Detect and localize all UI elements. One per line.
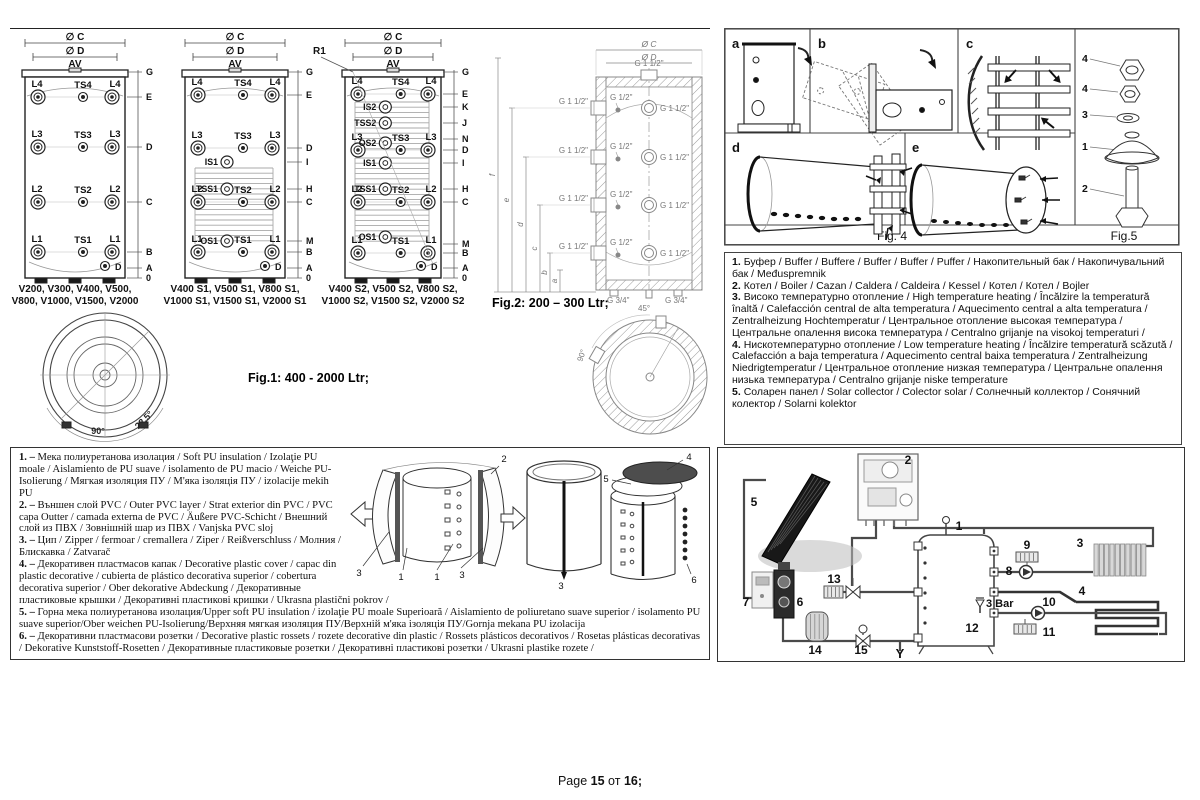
svg-text:4: 4 (1082, 53, 1088, 65)
svg-text:B: B (462, 248, 469, 258)
svg-text:c: c (530, 247, 539, 251)
svg-text:13: 13 (827, 572, 841, 586)
svg-text:V800, V1000, V1500, V2000: V800, V1000, V1500, V2000 (12, 296, 139, 307)
svg-text:A: A (306, 263, 313, 273)
svg-text:3: 3 (459, 570, 464, 581)
svg-text:C: C (462, 197, 469, 207)
svg-text:7: 7 (743, 595, 750, 609)
svg-text:E: E (462, 89, 468, 99)
svg-text:L1: L1 (269, 234, 281, 245)
svg-text:R1: R1 (313, 46, 326, 57)
svg-text:L2: L2 (269, 184, 280, 195)
legend-right-list: 1. Буфер / Buffer / Buffere / Buffer / B… (732, 257, 1174, 410)
manual-page: ∅ C∅ DAVGEDCBA0L4TS4L4L3TS3L3L2TS2L2L1TS… (0, 0, 1200, 800)
svg-text:OS1: OS1 (359, 232, 377, 242)
svg-text:∅ C: ∅ C (226, 32, 245, 43)
svg-text:N: N (462, 134, 469, 144)
svg-text:D: D (431, 262, 438, 272)
svg-text:9: 9 (1024, 538, 1031, 552)
svg-text:∅ D: ∅ D (384, 46, 403, 57)
svg-text:TSS1: TSS1 (354, 184, 376, 194)
svg-text:OS2: OS2 (359, 138, 377, 148)
svg-text:G 1 1/2": G 1 1/2" (660, 153, 689, 162)
svg-text:5: 5 (603, 474, 608, 485)
svg-text:G 1/2": G 1/2" (610, 190, 633, 199)
svg-text:5: 5 (751, 495, 758, 509)
svg-text:G 1 1/2": G 1 1/2" (559, 194, 588, 203)
svg-text:3: 3 (356, 568, 361, 579)
svg-text:L4: L4 (351, 76, 363, 87)
svg-text:0: 0 (306, 273, 311, 283)
svg-text:L3: L3 (269, 130, 280, 141)
svg-text:D: D (275, 262, 282, 272)
svg-text:∅ D: ∅ D (66, 46, 85, 57)
svg-text:L4: L4 (109, 79, 121, 90)
svg-text:12: 12 (965, 621, 979, 635)
svg-text:E: E (306, 90, 312, 100)
svg-text:2: 2 (905, 453, 912, 467)
legend-right-panel: 1. Буфер / Buffer / Buffere / Buffer / B… (724, 252, 1182, 445)
svg-text:1: 1 (1082, 141, 1088, 153)
svg-text:V1000 S2, V1500 S2, V2000 S2: V1000 S2, V1500 S2, V2000 S2 (322, 296, 465, 307)
svg-text:4: 4 (1079, 584, 1086, 598)
svg-text:G 1/2": G 1/2" (610, 142, 633, 151)
svg-text:d: d (732, 140, 740, 155)
svg-text:IS1: IS1 (205, 157, 218, 167)
svg-text:2: 2 (501, 454, 506, 465)
insulation-assembly-figure: 311323456 (349, 452, 701, 590)
svg-text:∅ D: ∅ D (226, 46, 245, 57)
fig1-caption: Fig.1: 400 - 2000 Ltr; (248, 371, 369, 385)
fig2-caption: Fig.2: 200 – 300 Ltr; (492, 296, 609, 310)
svg-text:0: 0 (462, 273, 467, 283)
tank-dimension-drawings: ∅ C∅ DAVGEDCBA0L4TS4L4L3TS3L3L2TS2L2L1TS… (10, 30, 710, 442)
svg-text:E: E (146, 92, 152, 102)
system-schematic-drawing: 1234567891011121314153 BarY (718, 448, 1183, 660)
svg-text:I: I (462, 158, 465, 168)
legend-left-panel: 311323456 1. – Мека полиуретанова изолац… (10, 447, 710, 660)
svg-text:TS1: TS1 (234, 235, 252, 246)
svg-text:1: 1 (398, 572, 403, 583)
svg-text:L4: L4 (31, 79, 43, 90)
svg-text:TSS1: TSS1 (196, 184, 218, 194)
svg-text:IS2: IS2 (363, 102, 376, 112)
top-rule (10, 28, 710, 29)
svg-text:L4: L4 (191, 77, 203, 88)
svg-text:90°: 90° (575, 348, 588, 362)
fig4-fig5-panel: abcdeFig. 4Fig.544312 (724, 28, 1182, 248)
svg-text:I: I (306, 157, 309, 167)
svg-text:V1000 S1, V1500 S1, V2000 S1: V1000 S1, V1500 S1, V2000 S1 (164, 296, 307, 307)
svg-text:L3: L3 (109, 129, 120, 140)
svg-text:Fig.5: Fig.5 (1111, 229, 1138, 243)
svg-text:90°: 90° (91, 426, 105, 436)
svg-text:TS1: TS1 (74, 235, 92, 246)
page-footer: Page 15 от 16; (0, 774, 1200, 788)
legend-item: 5. Соларен панел / Solar collector / Col… (732, 387, 1174, 411)
legend-item: 4. Нискотемпературно отопление / Low tem… (732, 340, 1174, 387)
fig1-fig2-drawings-panel: ∅ C∅ DAVGEDCBA0L4TS4L4L3TS3L3L2TS2L2L1TS… (10, 30, 710, 442)
svg-text:f: f (488, 173, 497, 176)
svg-text:TS2: TS2 (74, 185, 91, 196)
svg-text:6: 6 (797, 595, 804, 609)
svg-text:K: K (462, 102, 469, 112)
svg-text:L3: L3 (425, 132, 436, 143)
footer-total-pages: 16; (624, 774, 642, 788)
fig5-parts: 44312 (1082, 53, 1159, 227)
svg-text:C: C (146, 197, 153, 207)
svg-text:∅ C: ∅ C (384, 32, 403, 43)
svg-text:TS3: TS3 (234, 131, 251, 142)
svg-text:L4: L4 (425, 76, 437, 87)
legend-item: 3. Високо температурно отопление / High … (732, 292, 1174, 339)
insulation-assembly-drawing: 311323456 (349, 452, 701, 590)
svg-text:TS4: TS4 (392, 77, 410, 88)
svg-text:4: 4 (686, 452, 691, 463)
svg-text:Y: Y (896, 646, 905, 660)
svg-text:A: A (462, 263, 469, 273)
tank-diagram-2: ∅ C∅ DAVGEDIHCMBA0L4TS4L4L3TS3L3L2TS2L2L… (164, 32, 314, 307)
svg-text:H: H (306, 184, 313, 194)
svg-text:b: b (818, 36, 826, 51)
svg-text:OS1: OS1 (200, 236, 218, 246)
svg-text:6: 6 (691, 575, 696, 586)
svg-text:e: e (912, 140, 919, 155)
svg-text:L1: L1 (425, 235, 437, 246)
svg-text:a: a (732, 36, 740, 51)
svg-text:D: D (115, 262, 122, 272)
fig4-cell-a (738, 44, 812, 132)
svg-text:V400 S2, V500 S2, V800 S2,: V400 S2, V500 S2, V800 S2, (329, 284, 458, 295)
svg-text:G 1 1/2": G 1 1/2" (559, 97, 588, 106)
svg-text:d: d (516, 222, 525, 227)
fig4-cell-c (968, 56, 1070, 150)
svg-text:L3: L3 (31, 129, 42, 140)
svg-text:C: C (306, 197, 313, 207)
svg-text:TS3: TS3 (74, 130, 91, 141)
svg-text:3: 3 (558, 581, 563, 590)
svg-text:∅ C: ∅ C (66, 32, 85, 43)
svg-text:H: H (462, 184, 469, 194)
svg-text:c: c (966, 36, 973, 51)
svg-text:V200, V300, V400, V500,: V200, V300, V400, V500, (19, 284, 132, 295)
svg-text:L4: L4 (269, 77, 281, 88)
svg-text:8: 8 (1006, 564, 1013, 578)
svg-text:Ø D: Ø D (640, 52, 656, 62)
svg-text:A: A (146, 263, 153, 273)
legend-item: 5. – Горна мека полиуретанова изолация/U… (19, 607, 701, 631)
svg-text:TS4: TS4 (234, 78, 252, 89)
svg-text:G 1 1/2": G 1 1/2" (559, 146, 588, 155)
fig4-cell-b (803, 50, 952, 145)
svg-text:TS4: TS4 (74, 80, 92, 91)
svg-text:L1: L1 (109, 234, 121, 245)
svg-text:L2: L2 (109, 184, 120, 195)
svg-text:D: D (462, 145, 469, 155)
svg-text:2: 2 (1082, 183, 1088, 195)
svg-text:G 1/2": G 1/2" (610, 93, 633, 102)
fig1-bottom-view: 90°22.5° (40, 313, 170, 441)
svg-text:Ø C: Ø C (640, 39, 657, 49)
handling-instructions-drawing: abcdeFig. 4Fig.544312 (724, 28, 1180, 246)
svg-text:G 3/4": G 3/4" (607, 296, 630, 305)
svg-text:M: M (306, 236, 314, 246)
svg-text:1: 1 (956, 519, 963, 533)
svg-text:TS3: TS3 (392, 133, 409, 144)
legend-item: 6. – Декоративни пластмасови розетки / D… (19, 631, 701, 655)
svg-text:G 1 1/2": G 1 1/2" (559, 242, 588, 251)
svg-text:G 1/2": G 1/2" (610, 238, 633, 247)
footer-page-number: 15 (591, 774, 605, 788)
footer-prefix: Page (558, 774, 587, 788)
svg-text:D: D (146, 142, 153, 152)
svg-text:11: 11 (1043, 625, 1056, 639)
svg-text:V400 S1, V500 S1, V800 S1,: V400 S1, V500 S1, V800 S1, (171, 284, 300, 295)
svg-text:G: G (462, 67, 469, 77)
svg-text:14: 14 (808, 643, 822, 657)
svg-text:B: B (306, 247, 313, 257)
svg-text:L3: L3 (191, 130, 202, 141)
svg-text:0: 0 (146, 273, 151, 283)
svg-text:G 1 1/2": G 1 1/2" (660, 104, 689, 113)
fig4-cell-d (748, 154, 912, 240)
svg-text:TS2: TS2 (234, 185, 251, 196)
svg-text:15: 15 (854, 643, 868, 657)
svg-text:J: J (462, 118, 467, 128)
svg-text:L2: L2 (31, 184, 42, 195)
svg-text:G 1 1/2": G 1 1/2" (660, 201, 689, 210)
tank-diagram-3: ∅ C∅ DAVGEKJNDIHCMBA0L4TS4L4L3TS3L3L2TS2… (313, 32, 470, 307)
svg-text:L1: L1 (31, 234, 43, 245)
svg-text:10: 10 (1042, 595, 1056, 609)
system-schematic-panel: 1234567891011121314153 BarY (717, 447, 1185, 662)
svg-text:IS1: IS1 (363, 158, 376, 168)
svg-text:G 1 1/2": G 1 1/2" (660, 249, 689, 258)
svg-text:D: D (306, 143, 313, 153)
svg-text:3: 3 (1077, 536, 1084, 550)
svg-text:B: B (146, 247, 153, 257)
svg-text:3: 3 (1082, 109, 1088, 121)
footer-separator: от (608, 774, 620, 788)
svg-text:a: a (550, 278, 559, 283)
legend-item: 1. Буфер / Buffer / Buffere / Buffer / B… (732, 257, 1174, 281)
svg-text:TS1: TS1 (392, 236, 410, 247)
svg-text:L2: L2 (425, 184, 436, 195)
tank-diagram-1: ∅ C∅ DAVGEDCBA0L4TS4L4L3TS3L3L2TS2L2L1TS… (12, 32, 153, 307)
svg-text:45°: 45° (638, 304, 650, 313)
svg-text:4: 4 (1082, 83, 1088, 95)
svg-text:G: G (306, 67, 313, 77)
svg-text:b: b (540, 270, 549, 275)
svg-text:1: 1 (434, 572, 439, 583)
svg-text:G 3/4": G 3/4" (665, 296, 688, 305)
svg-text:e: e (502, 197, 511, 202)
svg-text:3 Bar: 3 Bar (986, 598, 1014, 610)
fig2-drawing: G 1 1/2"Ø CØ DG 1 1/2"G 1/2"G 1 1/2"G 1 … (488, 39, 707, 434)
svg-text:G: G (146, 67, 153, 77)
